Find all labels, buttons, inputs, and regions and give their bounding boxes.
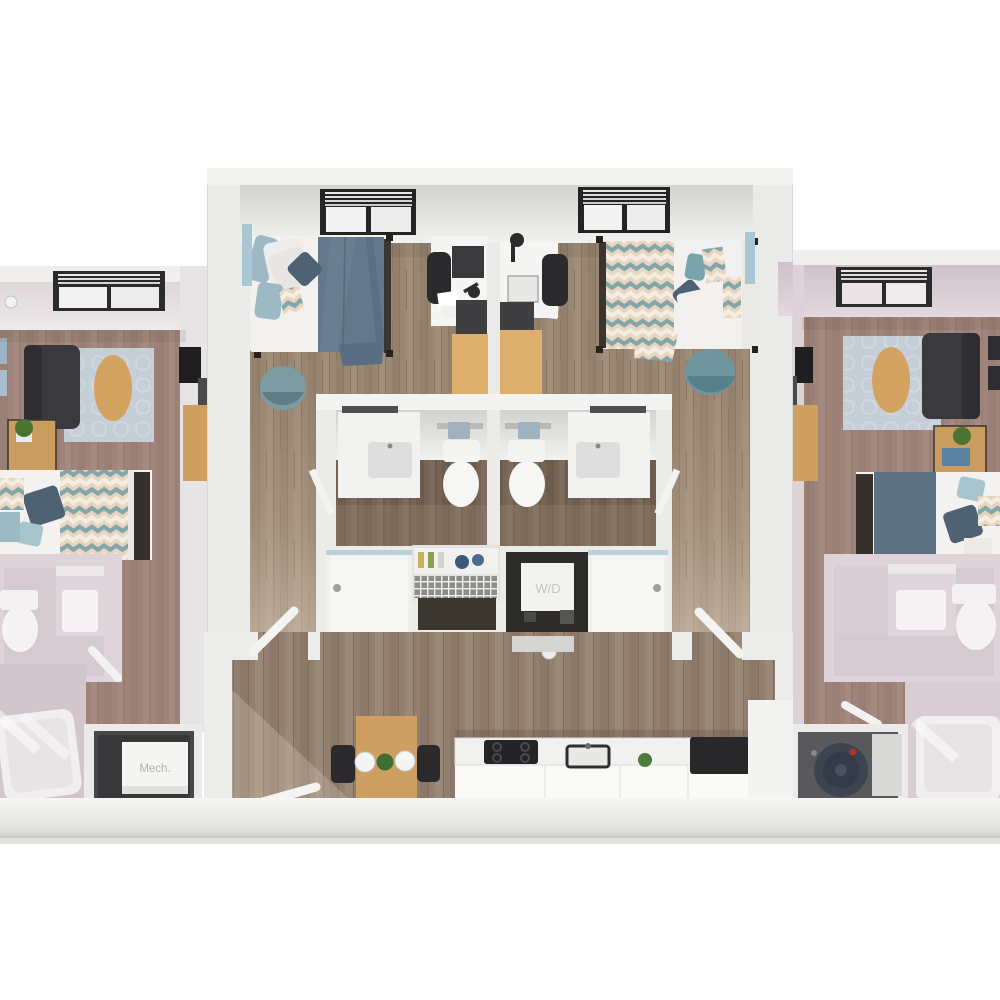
svg-text:W/D: W/D [535, 581, 560, 596]
svg-text:Mech.: Mech. [139, 763, 170, 775]
